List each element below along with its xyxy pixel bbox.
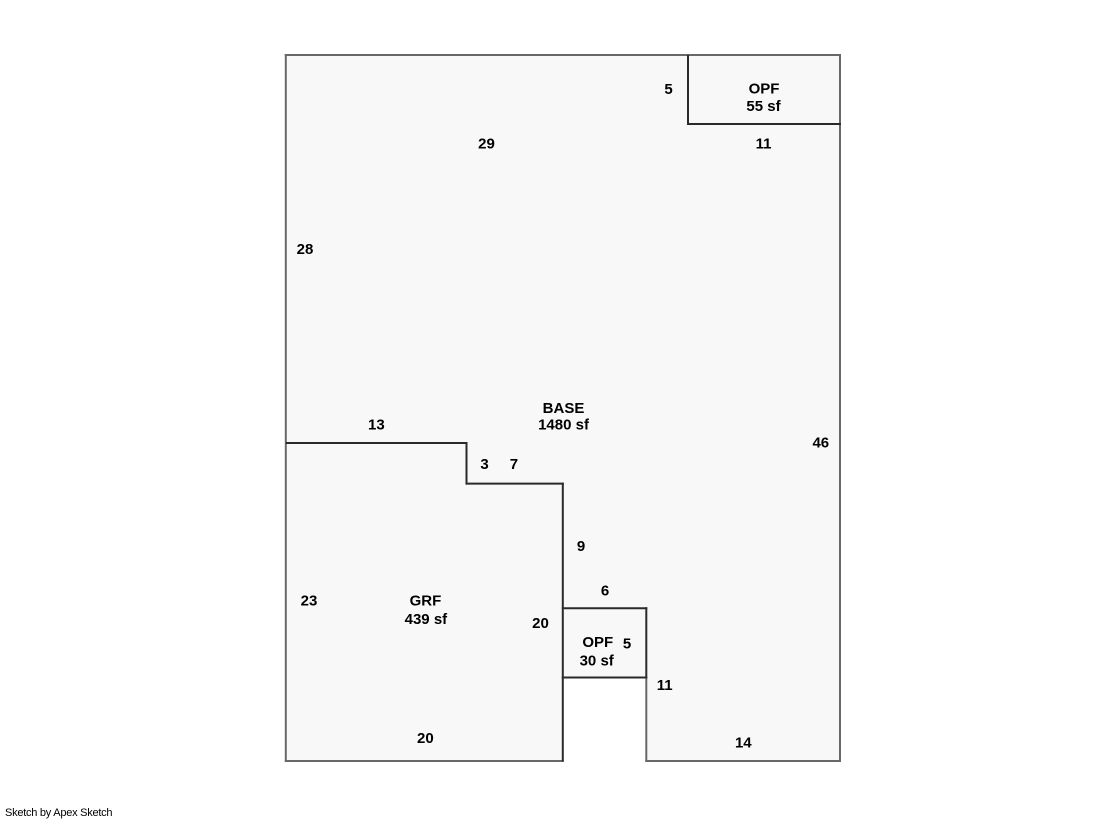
svg-text:1480 sf: 1480 sf [538, 416, 590, 433]
svg-text:46: 46 [812, 435, 829, 452]
svg-text:20: 20 [532, 615, 549, 632]
svg-text:55 sf: 55 sf [746, 98, 781, 115]
svg-text:OPF: OPF [749, 80, 780, 97]
svg-text:28: 28 [297, 241, 314, 258]
svg-text:13: 13 [368, 416, 385, 433]
svg-text:14: 14 [735, 734, 752, 751]
svg-text:11: 11 [756, 135, 772, 152]
svg-text:29: 29 [478, 135, 495, 152]
svg-text:11: 11 [657, 677, 673, 694]
svg-text:6: 6 [601, 582, 609, 599]
svg-text:3: 3 [480, 456, 488, 473]
svg-text:OPF: OPF [582, 634, 613, 651]
svg-text:23: 23 [301, 593, 318, 610]
svg-text:20: 20 [417, 730, 434, 747]
svg-text:GRF: GRF [410, 593, 442, 610]
svg-text:5: 5 [664, 81, 672, 98]
svg-text:439 sf: 439 sf [405, 611, 449, 628]
svg-text:7: 7 [510, 456, 518, 473]
svg-text:BASE: BASE [543, 400, 585, 417]
svg-text:30 sf: 30 sf [580, 653, 615, 670]
svg-text:5: 5 [623, 635, 631, 652]
svg-text:9: 9 [577, 538, 585, 555]
